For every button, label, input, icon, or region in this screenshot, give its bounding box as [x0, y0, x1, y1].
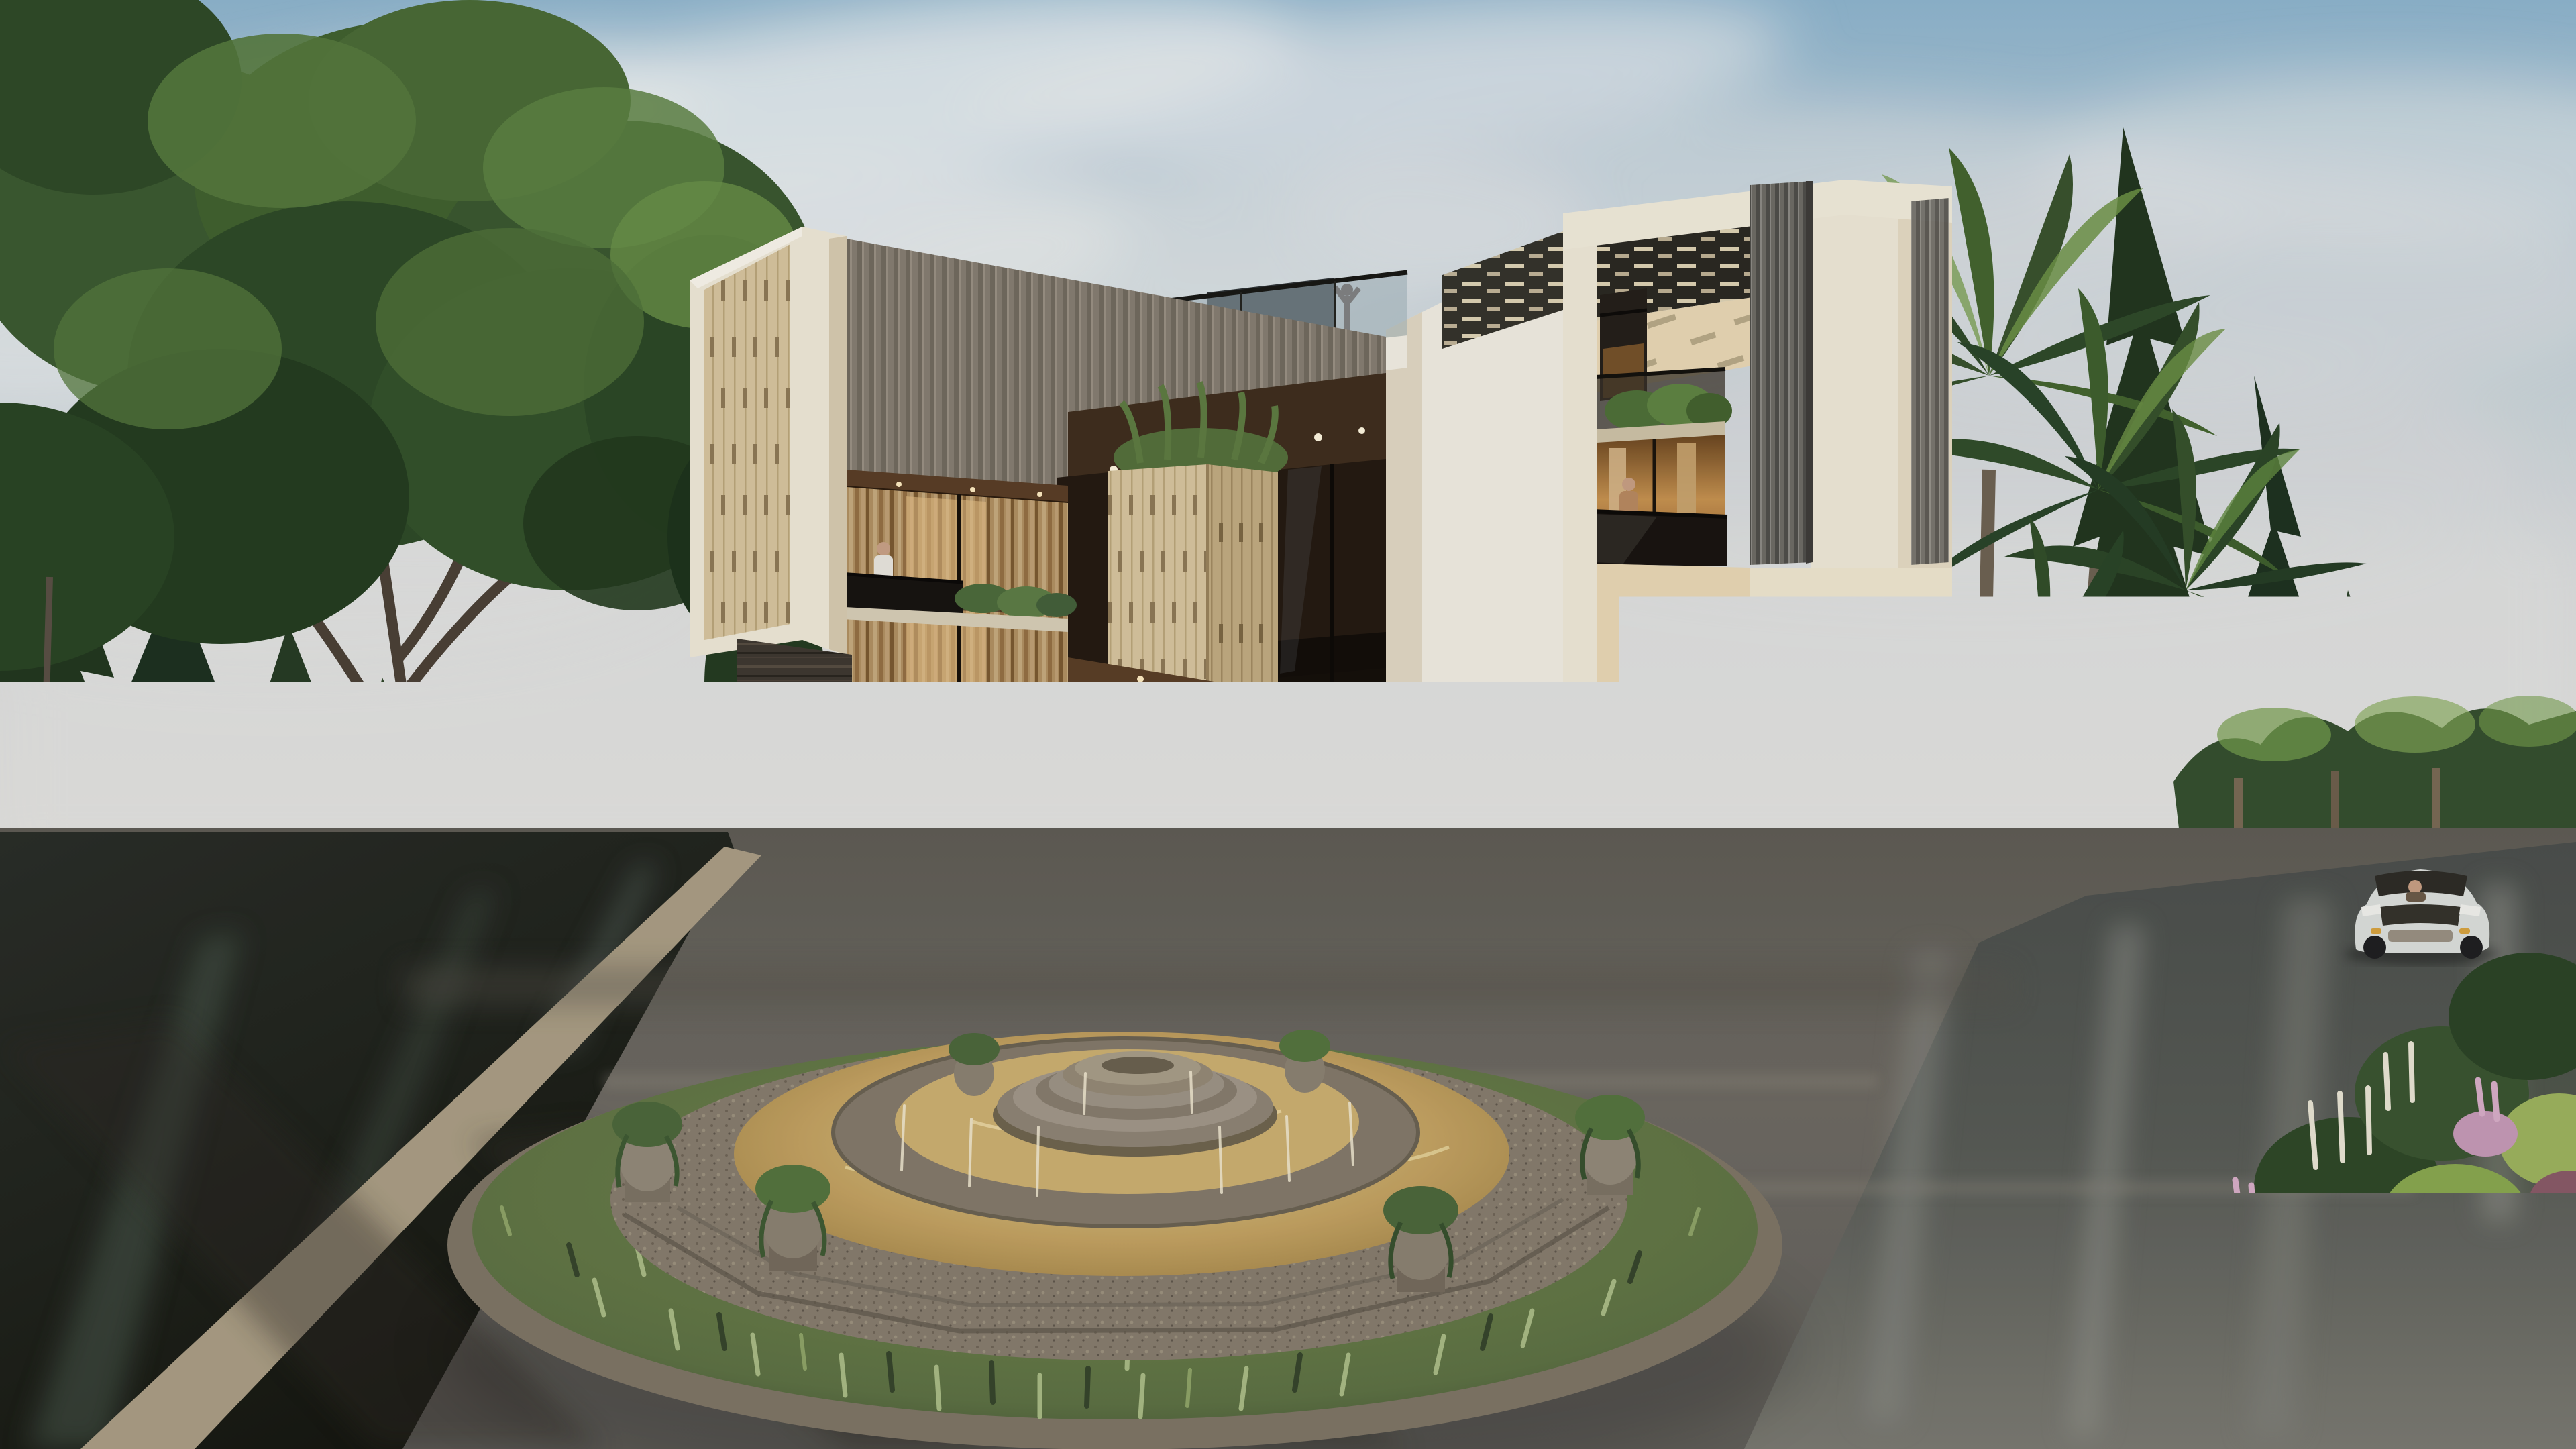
render-viewport — [0, 0, 2576, 1449]
villa-render — [0, 0, 2576, 1449]
vignette — [0, 0, 2576, 1449]
